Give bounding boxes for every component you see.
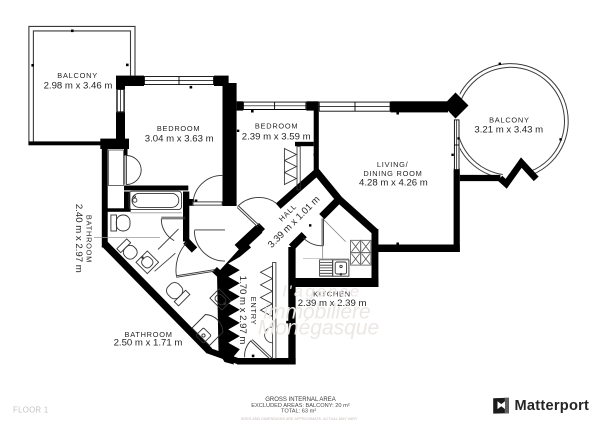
svg-text:2.39 m x 3.59 m: 2.39 m x 3.59 m [242,131,311,142]
svg-text:FLOOR 1: FLOOR 1 [13,406,48,415]
svg-text:BALCONY: BALCONY [489,115,530,124]
svg-text:2.98 m x 3.46 m: 2.98 m x 3.46 m [44,81,113,92]
svg-text:4.28 m x 4.26 m: 4.28 m x 4.26 m [359,178,428,189]
svg-text:Matterport: Matterport [515,398,590,414]
svg-text:BALCONY: BALCONY [57,71,98,80]
svg-text:ENTRY: ENTRY [249,297,258,326]
svg-text:TOTAL: 63 m²: TOTAL: 63 m² [281,408,316,414]
svg-text:LIVING/: LIVING/ [377,160,409,169]
svg-text:BEDROOM: BEDROOM [157,124,200,133]
svg-text:BEDROOM: BEDROOM [255,122,298,131]
svg-text:SIZES AND DIMENSIONS ARE APPRO: SIZES AND DIMENSIONS ARE APPROXIMATE, AC… [241,417,358,421]
svg-text:Monégasque: Monégasque [258,316,379,339]
svg-text:3.21 m x 3.43 m: 3.21 m x 3.43 m [474,124,543,135]
svg-text:l'agence: l'agence [282,284,361,301]
svg-text:2.50 m x 1.71 m: 2.50 m x 1.71 m [114,338,183,349]
svg-text:1.70 m x 2.97 m: 1.70 m x 2.97 m [237,276,248,345]
svg-text:3.04 m x 3.63 m: 3.04 m x 3.63 m [145,134,214,145]
svg-text:BATHROOM: BATHROOM [85,215,94,263]
svg-text:2.40 m x 2.97 m: 2.40 m x 2.97 m [73,204,84,273]
